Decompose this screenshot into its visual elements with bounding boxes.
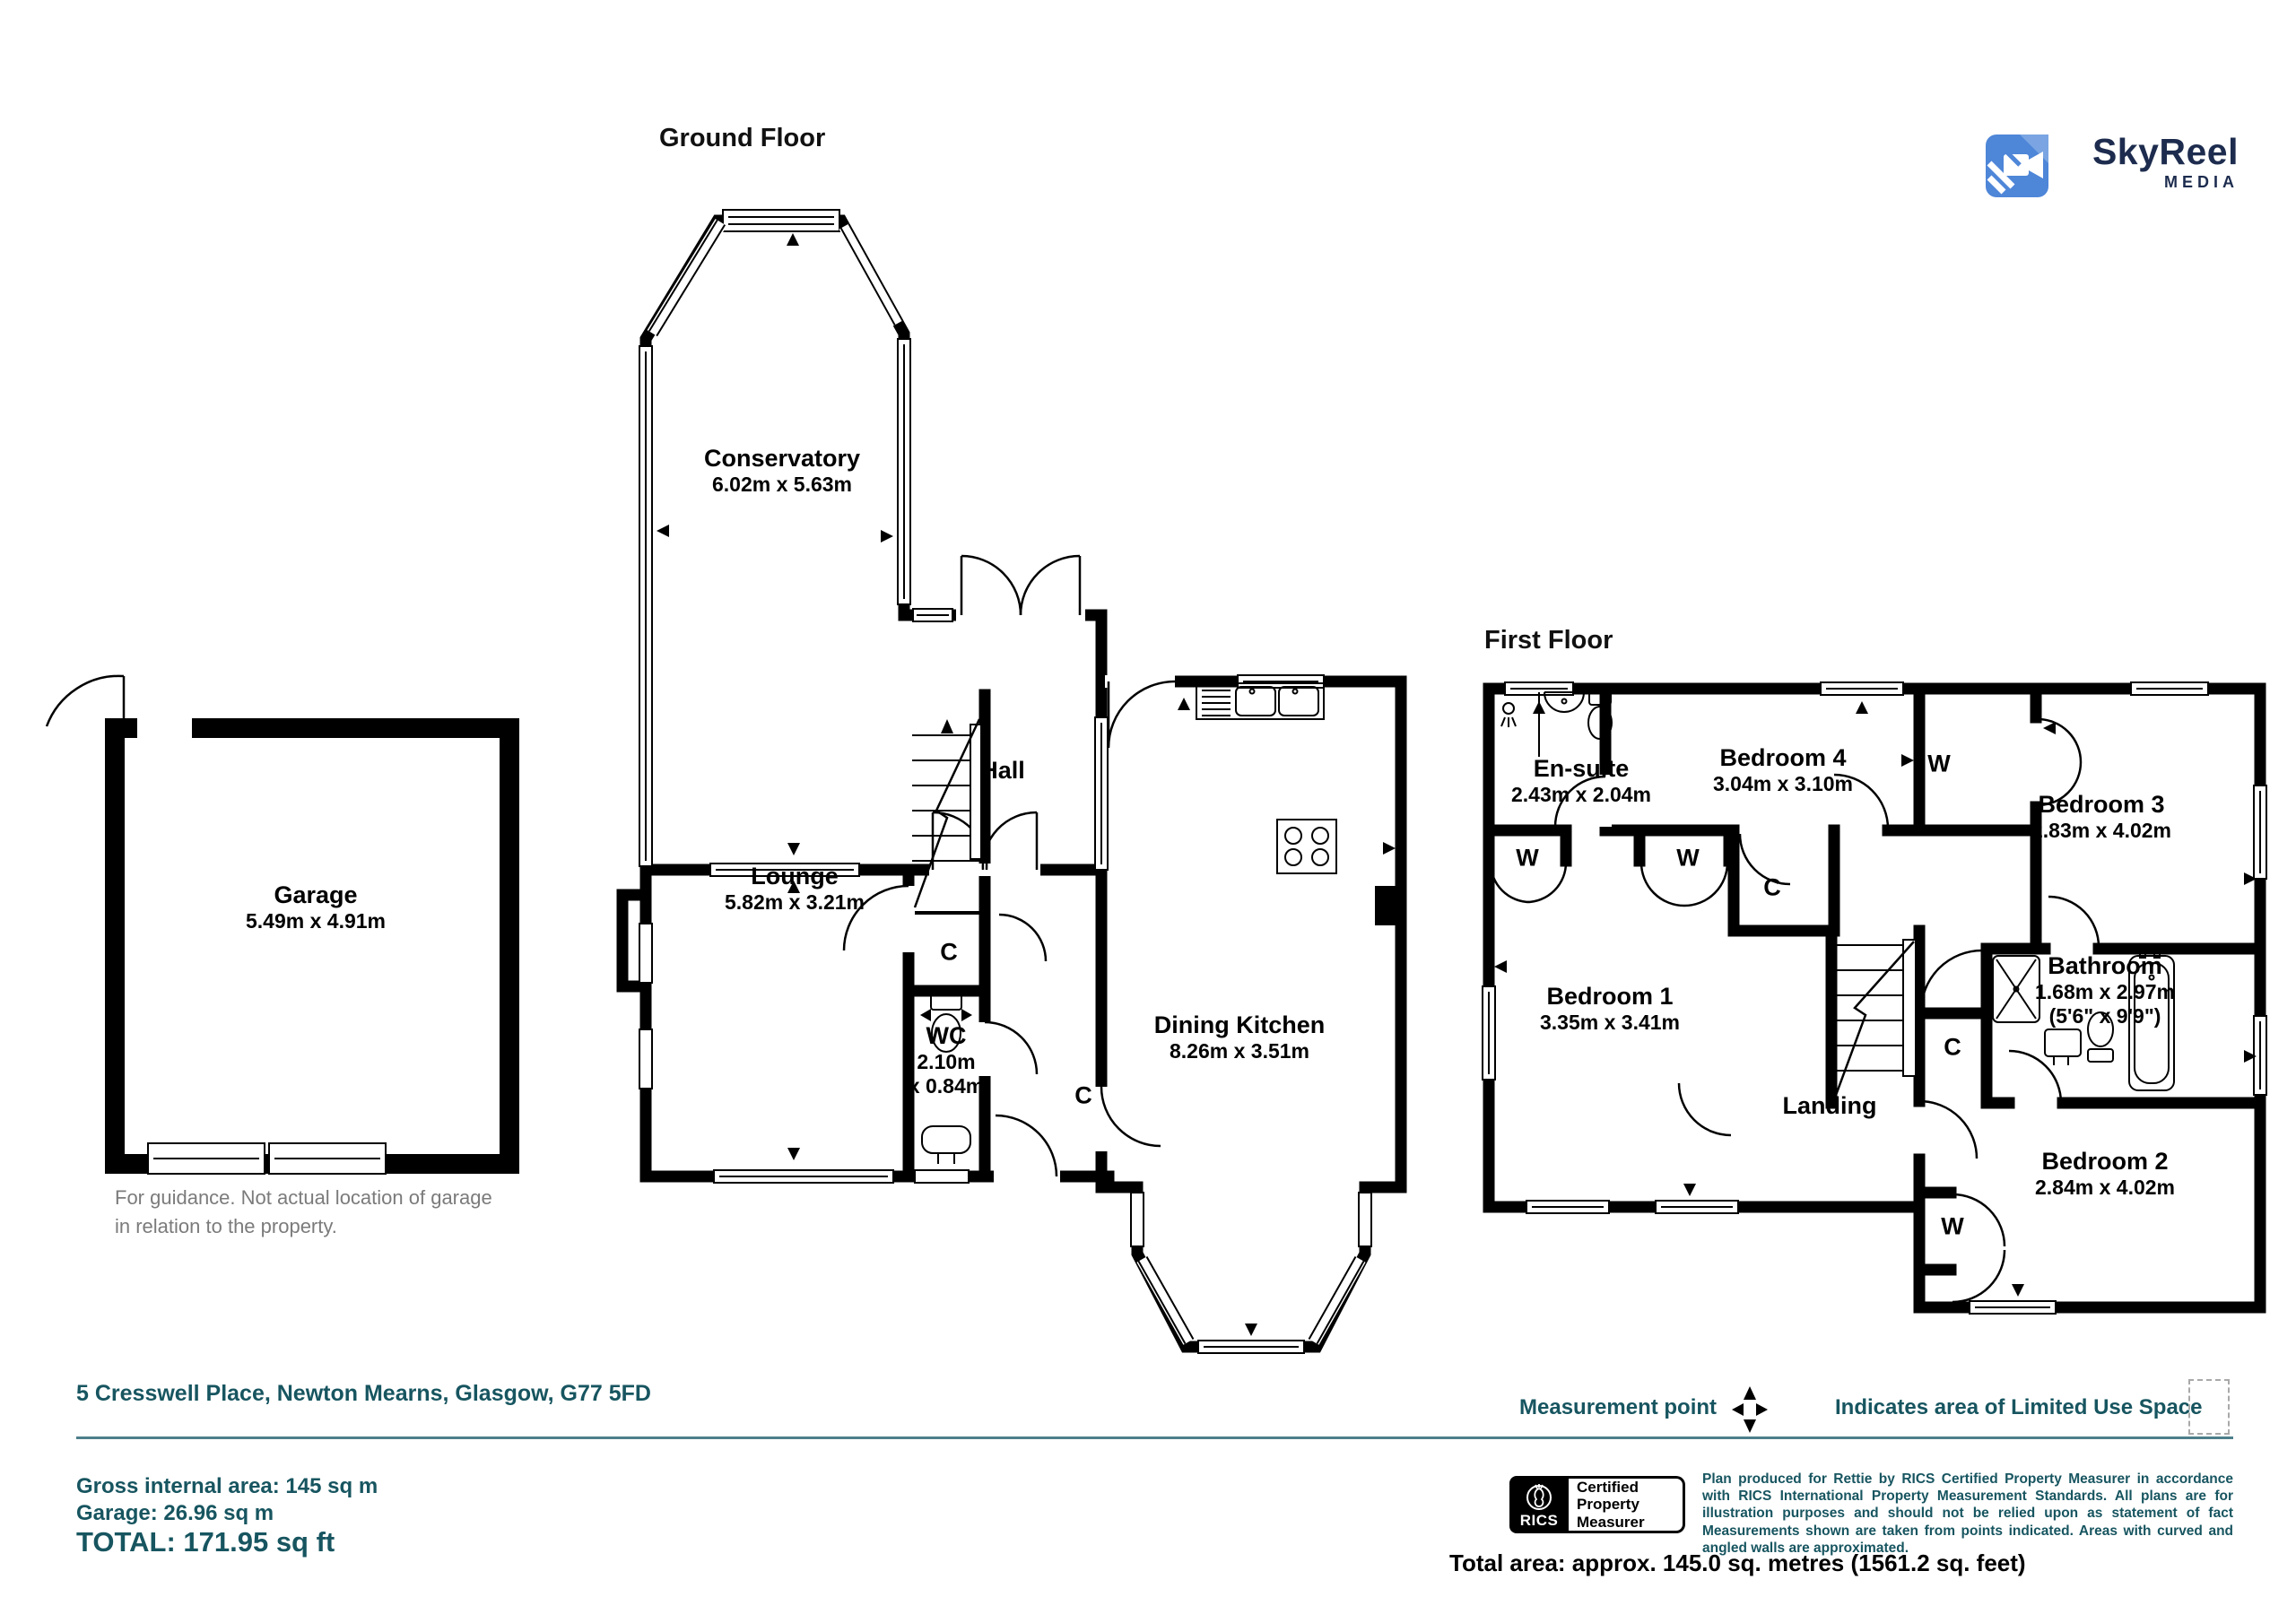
cupboard-label-first-1: C (1763, 874, 1781, 902)
skyreel-camera-icon (1984, 133, 2050, 199)
cupboard-label-ground-2: C (1074, 1082, 1092, 1110)
limited-use-space-label: Indicates area of Limited Use Space (1835, 1395, 2203, 1420)
rics-certified-text: Certified Property Measurer (1577, 1479, 1645, 1530)
wardrobe-label-first-4: W (1941, 1213, 1963, 1241)
room-label-bedroom3: Bedroom 3 2.83m x 4.02m (2031, 791, 2171, 843)
floorplan-page: { "titles": { "ground_floor": "Ground Fl… (0, 0, 2296, 1623)
rics-lion-icon: RICS (1509, 1476, 1569, 1533)
logo-name: SkyReel (2063, 133, 2239, 171)
first-floor-title: First Floor (1484, 626, 1613, 655)
skyreel-logo: SkyReel MEDIA (1984, 133, 2239, 199)
measurement-point-label: Measurement point (1519, 1395, 1717, 1420)
plan-disclaimer: Plan produced for Rettie by RICS Certifi… (1702, 1471, 2233, 1557)
room-label-bathroom: Bathroom 1.68m x 2.97m (5'6" x 9'9") (2035, 952, 2175, 1028)
room-label-dining-kitchen: Dining Kitchen 8.26m x 3.51m (1154, 1011, 1326, 1063)
room-label-hall: Hall (980, 757, 1025, 785)
cupboard-label-first-2: C (1944, 1034, 1961, 1062)
footer-divider (76, 1436, 2233, 1439)
room-label-bedroom1: Bedroom 1 3.35m x 3.41m (1540, 983, 1680, 1035)
room-label-bedroom4: Bedroom 4 3.04m x 3.10m (1713, 744, 1853, 796)
wardrobe-label-first-1: W (1927, 751, 1950, 778)
ground-floor-title: Ground Floor (659, 124, 825, 153)
limited-use-space-icon (2188, 1379, 2230, 1435)
measurement-point-icon (1729, 1383, 1770, 1436)
room-label-wc: WC 2.10m x 0.84m (909, 1022, 984, 1098)
room-label-ensuite: En-suite 2.43m x 2.04m (1511, 755, 1651, 807)
room-label-garage: Garage 5.49m x 4.91m (246, 881, 386, 933)
total-text: TOTAL: 171.95 sq ft (76, 1526, 335, 1558)
wardrobe-label-first-2: W (1516, 845, 1538, 872)
room-label-lounge: Lounge 5.82m x 3.21m (725, 863, 865, 915)
total-area-text: Total area: approx. 145.0 sq. metres (15… (1449, 1549, 2026, 1577)
logo-tagline: MEDIA (2063, 173, 2239, 192)
wardrobe-label-first-3: W (1676, 845, 1699, 872)
room-label-bedroom2: Bedroom 2 2.84m x 4.02m (2035, 1148, 2175, 1200)
ground-fixtures (922, 683, 1401, 1164)
room-label-conservatory: Conservatory 6.02m x 5.63m (704, 445, 860, 497)
gross-area-text: Gross internal area: 145 sq m (76, 1474, 378, 1499)
cupboard-label-ground-1: C (940, 939, 958, 967)
rics-certified-badge: RICS Certified Property Measurer (1509, 1476, 1685, 1533)
property-address: 5 Cresswell Place, Newton Mearns, Glasgo… (76, 1381, 651, 1407)
garage-note: For guidance. Not actual location of gar… (115, 1184, 492, 1241)
garage-area-text: Garage: 26.96 sq m (76, 1501, 274, 1526)
first-stairs-icon (1835, 940, 1916, 1098)
room-label-landing: Landing (1783, 1092, 1877, 1120)
